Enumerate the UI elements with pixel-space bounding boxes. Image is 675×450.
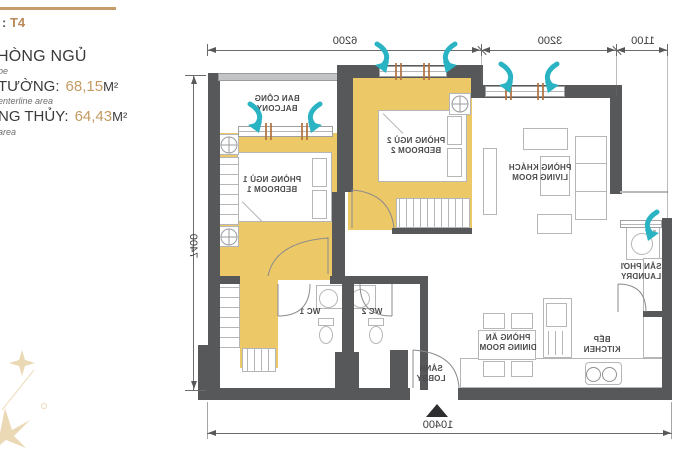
entry-door-arc	[413, 350, 459, 388]
area-unit: M²	[112, 109, 127, 124]
plan-symbol-overlay	[185, 0, 675, 450]
area-label: NG THỦY:	[0, 108, 69, 125]
airflow-arrow-icon	[375, 44, 389, 73]
airflow-arrow-icon	[499, 64, 513, 93]
airflow-arrow-icon	[545, 64, 559, 93]
wc2-door-arc	[360, 284, 392, 316]
heading-note-fragment: oe	[0, 66, 8, 76]
airflow-arrows	[248, 44, 659, 241]
unit-code-value: T4	[10, 15, 25, 30]
fan-icon	[221, 137, 237, 153]
fan-icon	[221, 229, 237, 245]
floor-plan-mirrored-canvas: BAN CÔNGBALCONY PHÒNG NGỦ 1BEDROOM 1 PHÒ…	[185, 0, 675, 450]
airflow-arrow-icon	[443, 44, 457, 73]
door-swing-arcs	[268, 190, 646, 388]
unit-code: : T4	[2, 15, 25, 30]
laundry-door-arc	[618, 284, 646, 312]
area-label: TƯỜNG:	[0, 78, 60, 95]
gold-accent-rule	[0, 7, 116, 10]
area-value: 64,43	[69, 108, 113, 125]
bedroom2-door-arc	[352, 190, 394, 228]
brand-watermark-flower-icon	[0, 338, 102, 450]
floor-plan-page: { "info_panel": { "unit_prefix": ":", "u…	[0, 0, 675, 450]
unit-code-prefix: :	[2, 15, 6, 30]
fan-icon	[452, 96, 468, 112]
area-row-clear: NG THỦY:64,43M²	[0, 108, 127, 125]
wc1-door-arc	[278, 284, 310, 316]
area-note-clear: area	[0, 127, 16, 137]
bedroom1-door-arc	[268, 237, 328, 276]
area-unit: M²	[103, 79, 118, 94]
area-row-wall: TƯỜNG:68,15M²	[0, 78, 118, 95]
airflow-arrow-icon	[308, 104, 322, 133]
area-value: 68,15	[60, 78, 104, 95]
airflow-arrow-icon	[248, 104, 262, 133]
area-note-centerline: enterline area	[0, 96, 53, 106]
apartment-heading-fragment: HÒNG NGỦ	[0, 48, 87, 66]
airflow-arrow-icon	[645, 212, 659, 241]
